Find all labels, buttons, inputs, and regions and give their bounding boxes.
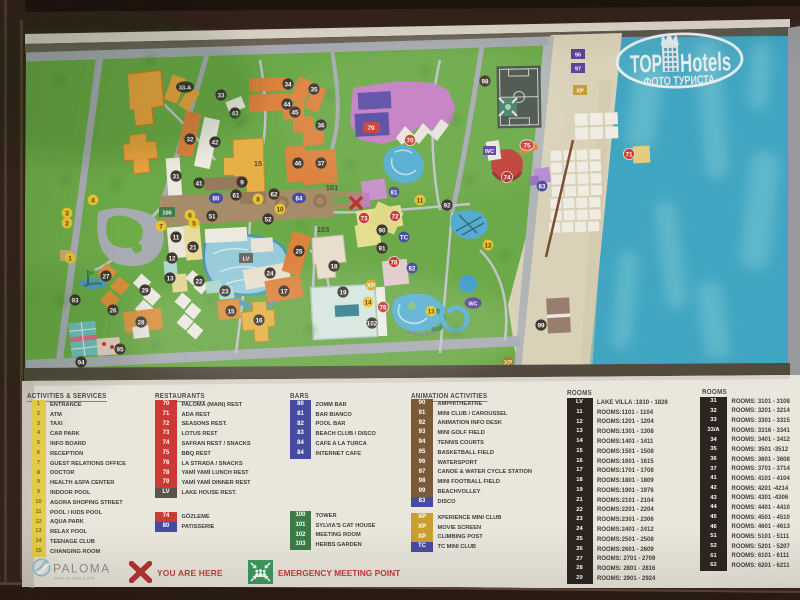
svg-text:GREA VILLAGE & SPA: GREA VILLAGE & SPA — [54, 577, 95, 581]
svg-text:PALOMA: PALOMA — [53, 562, 111, 576]
